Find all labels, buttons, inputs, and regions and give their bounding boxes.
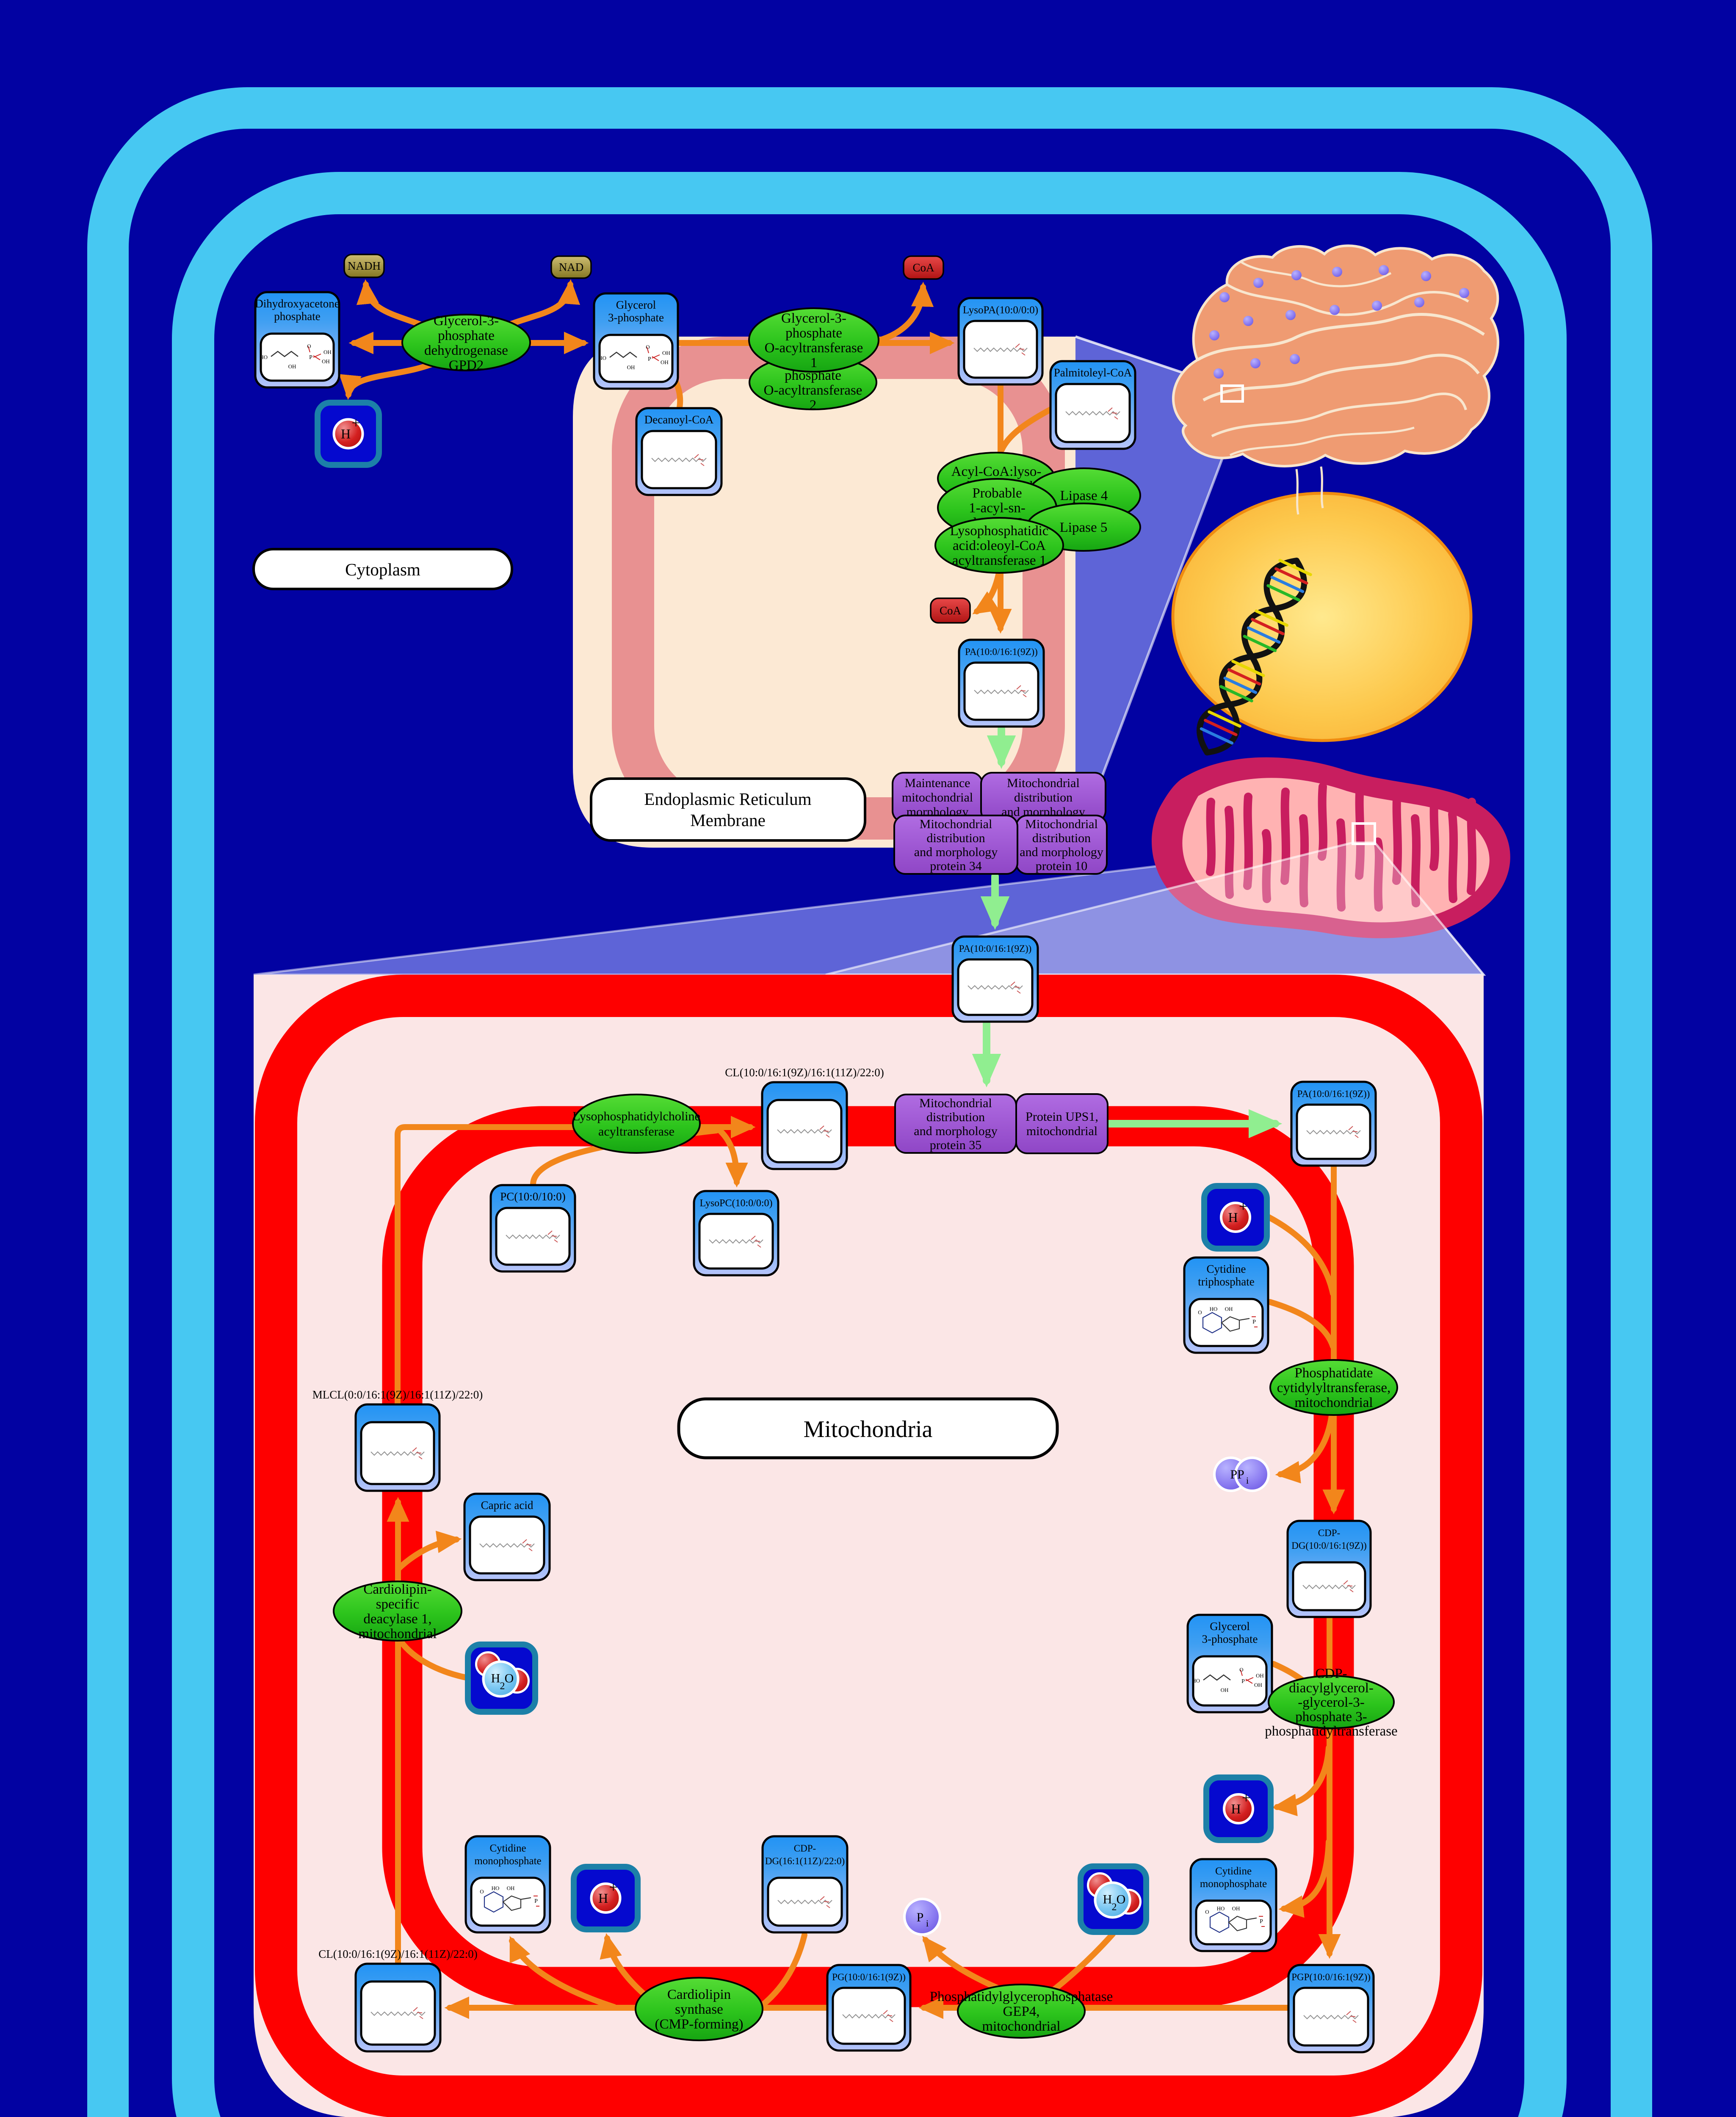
svg-text:O-acyltransferase: O-acyltransferase bbox=[765, 340, 863, 356]
svg-text:PP: PP bbox=[1230, 1468, 1244, 1481]
svg-text:P: P bbox=[534, 1898, 538, 1904]
svg-text:OH: OH bbox=[1225, 1306, 1233, 1312]
svg-text:PA(10:0/16:1(9Z)): PA(10:0/16:1(9Z)) bbox=[965, 647, 1038, 657]
svg-text:CoA: CoA bbox=[912, 261, 934, 274]
svg-text:Phosphatidate: Phosphatidate bbox=[1294, 1365, 1373, 1381]
svg-text:P: P bbox=[917, 1910, 924, 1924]
svg-text:Endoplasmic Reticulum: Endoplasmic Reticulum bbox=[644, 789, 811, 809]
svg-text:phosphatidyltransferase: phosphatidyltransferase bbox=[1265, 1724, 1397, 1739]
svg-text:Lysophosphatidylcholine: Lysophosphatidylcholine bbox=[572, 1109, 700, 1123]
svg-text:Mitochondria: Mitochondria bbox=[804, 1416, 933, 1443]
svg-text:CoA: CoA bbox=[940, 604, 962, 617]
svg-text:Mitochondrial: Mitochondrial bbox=[920, 817, 992, 831]
svg-text:Capric acid: Capric acid bbox=[481, 1499, 534, 1512]
svg-text:-glycerol-3-: -glycerol-3- bbox=[1298, 1695, 1365, 1710]
svg-text:Glycerol: Glycerol bbox=[1210, 1620, 1249, 1633]
svg-text:Cytidine: Cytidine bbox=[489, 1843, 526, 1854]
svg-text:O: O bbox=[480, 1888, 484, 1895]
svg-text:Cardiolipin-: Cardiolipin- bbox=[363, 1582, 431, 1597]
svg-text:protein 10: protein 10 bbox=[1036, 859, 1087, 873]
svg-text:Cytidine: Cytidine bbox=[1207, 1263, 1246, 1275]
svg-text:cytidylyltransferase,: cytidylyltransferase, bbox=[1277, 1380, 1390, 1396]
svg-text:+: + bbox=[351, 415, 360, 431]
svg-text:monophosphate: monophosphate bbox=[474, 1855, 541, 1867]
svg-text:O: O bbox=[505, 1672, 514, 1686]
svg-text:dehydrogenase: dehydrogenase bbox=[424, 343, 508, 358]
svg-text:H: H bbox=[341, 426, 351, 442]
svg-text:phosphate: phosphate bbox=[785, 326, 842, 341]
svg-text:H: H bbox=[1103, 1893, 1112, 1907]
svg-text:OH: OH bbox=[1221, 1687, 1229, 1693]
svg-text:P: P bbox=[1241, 1678, 1245, 1685]
svg-text:(CMP-forming): (CMP-forming) bbox=[655, 2017, 744, 2032]
svg-text:1-acyl-sn-: 1-acyl-sn- bbox=[969, 500, 1026, 516]
svg-text:protein 34: protein 34 bbox=[930, 859, 981, 873]
svg-text:phosphate: phosphate bbox=[274, 310, 320, 323]
svg-text:distribution: distribution bbox=[1014, 790, 1073, 804]
svg-text:distribution: distribution bbox=[926, 1110, 985, 1124]
svg-text:NADH: NADH bbox=[348, 260, 381, 272]
svg-text:synthase: synthase bbox=[675, 2002, 723, 2017]
svg-text:Glycerol: Glycerol bbox=[616, 298, 656, 311]
svg-text:protein 35: protein 35 bbox=[930, 1138, 981, 1152]
svg-text:OH: OH bbox=[288, 363, 296, 370]
svg-text:H: H bbox=[598, 1890, 608, 1906]
svg-text:Mitochondrial: Mitochondrial bbox=[1007, 776, 1080, 790]
svg-text:H: H bbox=[1231, 1801, 1241, 1816]
svg-text:H: H bbox=[1228, 1210, 1238, 1225]
svg-text:monophosphate: monophosphate bbox=[1200, 1878, 1267, 1890]
svg-text:P: P bbox=[1252, 1319, 1256, 1325]
svg-text:PA(10:0/16:1(9Z)): PA(10:0/16:1(9Z)) bbox=[959, 943, 1032, 954]
svg-text:DG(16:1(11Z)/22:0): DG(16:1(11Z)/22:0) bbox=[765, 1856, 845, 1866]
svg-text:PG(10:0/16:1(9Z)): PG(10:0/16:1(9Z)) bbox=[832, 1972, 906, 1982]
svg-text:OH: OH bbox=[507, 1885, 515, 1891]
svg-text:Mitochondrial: Mitochondrial bbox=[919, 1096, 992, 1110]
svg-text:OH: OH bbox=[627, 364, 635, 370]
svg-text:HO: HO bbox=[1192, 1678, 1200, 1684]
svg-text:OH: OH bbox=[1254, 1682, 1262, 1688]
svg-text:HO: HO bbox=[1217, 1905, 1225, 1912]
svg-text:O: O bbox=[646, 344, 650, 350]
svg-text:acyltransferase: acyltransferase bbox=[598, 1125, 674, 1139]
svg-text:MLCL(0:0/16:1(9Z)/16:1(11Z)/22: MLCL(0:0/16:1(9Z)/16:1(11Z)/22:0) bbox=[312, 1388, 483, 1401]
svg-text:OH: OH bbox=[323, 349, 332, 355]
svg-text:P: P bbox=[648, 356, 651, 362]
svg-text:+: + bbox=[1242, 1789, 1250, 1806]
svg-text:diacylglycerol-: diacylglycerol- bbox=[1289, 1680, 1374, 1696]
svg-text:deacylase 1,: deacylase 1, bbox=[363, 1611, 431, 1627]
svg-text:GPD2: GPD2 bbox=[449, 358, 484, 373]
svg-text:OH: OH bbox=[1256, 1672, 1264, 1679]
svg-text:specific: specific bbox=[376, 1597, 420, 1612]
svg-text:O: O bbox=[1205, 1909, 1209, 1915]
svg-text:O: O bbox=[307, 343, 311, 349]
svg-text:OH: OH bbox=[1232, 1905, 1240, 1912]
svg-text:3-phosphate: 3-phosphate bbox=[608, 311, 664, 324]
svg-text:O: O bbox=[1117, 1893, 1126, 1907]
svg-text:LysoPC(10:0/0:0): LysoPC(10:0/0:0) bbox=[699, 1198, 772, 1209]
svg-text:HO: HO bbox=[598, 355, 606, 361]
svg-text:O-acyltransferase: O-acyltransferase bbox=[764, 383, 862, 398]
svg-text:OH: OH bbox=[661, 359, 669, 365]
svg-text:DG(10:0/16:1(9Z)): DG(10:0/16:1(9Z)) bbox=[1291, 1540, 1367, 1551]
svg-text:distribution: distribution bbox=[1032, 831, 1091, 845]
svg-text:mitochondrial: mitochondrial bbox=[902, 790, 973, 804]
svg-text:H: H bbox=[491, 1672, 500, 1686]
svg-text:P: P bbox=[309, 354, 312, 361]
svg-text:2: 2 bbox=[810, 398, 817, 413]
svg-text:CDP-: CDP- bbox=[794, 1843, 816, 1854]
svg-text:i: i bbox=[1246, 1475, 1249, 1486]
svg-text:Cytoplasm: Cytoplasm bbox=[345, 560, 420, 579]
svg-text:and morphology: and morphology bbox=[914, 845, 998, 859]
svg-text:HO: HO bbox=[492, 1885, 500, 1891]
svg-text:i: i bbox=[926, 1918, 929, 1929]
svg-text:Probable: Probable bbox=[972, 486, 1022, 501]
svg-text:and morphology: and morphology bbox=[914, 1124, 997, 1138]
svg-text:Lipase 5: Lipase 5 bbox=[1060, 520, 1108, 535]
svg-text:Lipase 4: Lipase 4 bbox=[1060, 488, 1108, 503]
svg-text:Decanoyl-CoA: Decanoyl-CoA bbox=[644, 413, 714, 426]
svg-text:OH: OH bbox=[662, 350, 670, 356]
svg-text:Cardiolipin: Cardiolipin bbox=[667, 1987, 731, 2002]
svg-text:phosphate 3-: phosphate 3- bbox=[1295, 1709, 1367, 1725]
svg-text:Palmitoleyl-CoA: Palmitoleyl-CoA bbox=[1054, 366, 1132, 379]
svg-text:+: + bbox=[1239, 1198, 1247, 1215]
svg-text:CDP-: CDP- bbox=[1315, 1666, 1347, 1681]
svg-text:phosphate: phosphate bbox=[438, 328, 495, 343]
svg-text:triphosphate: triphosphate bbox=[1198, 1275, 1254, 1288]
svg-text:LysoPA(10:0/0:0): LysoPA(10:0/0:0) bbox=[963, 304, 1038, 316]
svg-text:Acyl-CoA:lyso-: Acyl-CoA:lyso- bbox=[951, 464, 1042, 479]
svg-text:+: + bbox=[609, 1879, 617, 1896]
svg-text:PA(10:0/16:1(9Z)): PA(10:0/16:1(9Z)) bbox=[1297, 1089, 1370, 1099]
svg-text:Phosphatidylglycerophosphatase: Phosphatidylglycerophosphatase bbox=[930, 1989, 1113, 2004]
svg-text:CL(10:0/16:1(9Z)/16:1(11Z)/22:: CL(10:0/16:1(9Z)/16:1(11Z)/22:0) bbox=[318, 1948, 477, 1960]
svg-text:NAD: NAD bbox=[559, 261, 584, 274]
svg-text:distribution: distribution bbox=[926, 831, 985, 845]
svg-text:O: O bbox=[1239, 1667, 1243, 1673]
svg-text:acyltransferase 1: acyltransferase 1 bbox=[952, 553, 1047, 568]
svg-text:PC(10:0/10:0): PC(10:0/10:0) bbox=[500, 1190, 566, 1203]
svg-text:mitochondrial: mitochondrial bbox=[982, 2019, 1060, 2034]
svg-text:CDP-: CDP- bbox=[1318, 1528, 1340, 1538]
svg-text:1: 1 bbox=[810, 355, 818, 370]
svg-text:Cytidine: Cytidine bbox=[1215, 1866, 1252, 1877]
svg-text:OH: OH bbox=[322, 358, 330, 365]
svg-text:Maintenance: Maintenance bbox=[905, 776, 970, 790]
svg-text:mitochondrial: mitochondrial bbox=[358, 1626, 437, 1642]
svg-text:PGP(10:0/16:1(9Z)): PGP(10:0/16:1(9Z)) bbox=[1291, 1972, 1371, 1982]
svg-text:Glycerol-3-: Glycerol-3- bbox=[434, 313, 499, 329]
svg-text:CL(10:0/16:1(9Z)/16:1(11Z)/22:: CL(10:0/16:1(9Z)/16:1(11Z)/22:0) bbox=[725, 1066, 884, 1079]
svg-text:Mitochondrial: Mitochondrial bbox=[1025, 817, 1098, 831]
svg-text:O: O bbox=[1198, 1309, 1202, 1316]
svg-text:Lysophosphatidic: Lysophosphatidic bbox=[950, 523, 1049, 539]
svg-text:HO: HO bbox=[260, 354, 268, 360]
svg-text:HO: HO bbox=[1210, 1306, 1218, 1312]
svg-text:Dihydroxyacetone: Dihydroxyacetone bbox=[255, 297, 339, 310]
svg-text:and morphology: and morphology bbox=[1020, 845, 1103, 859]
svg-text:Glycerol-3-: Glycerol-3- bbox=[781, 311, 846, 326]
svg-text:3-phosphate: 3-phosphate bbox=[1202, 1633, 1258, 1645]
svg-text:GEP4,: GEP4, bbox=[1003, 2004, 1039, 2019]
svg-text:Protein UPS1,: Protein UPS1, bbox=[1026, 1110, 1098, 1124]
svg-text:P: P bbox=[1260, 1918, 1263, 1925]
svg-text:mitochondrial: mitochondrial bbox=[1026, 1124, 1097, 1138]
svg-text:Membrane: Membrane bbox=[690, 810, 766, 830]
svg-text:acid:oleoyl-CoA: acid:oleoyl-CoA bbox=[953, 538, 1046, 553]
svg-text:mitochondrial: mitochondrial bbox=[1294, 1395, 1373, 1410]
